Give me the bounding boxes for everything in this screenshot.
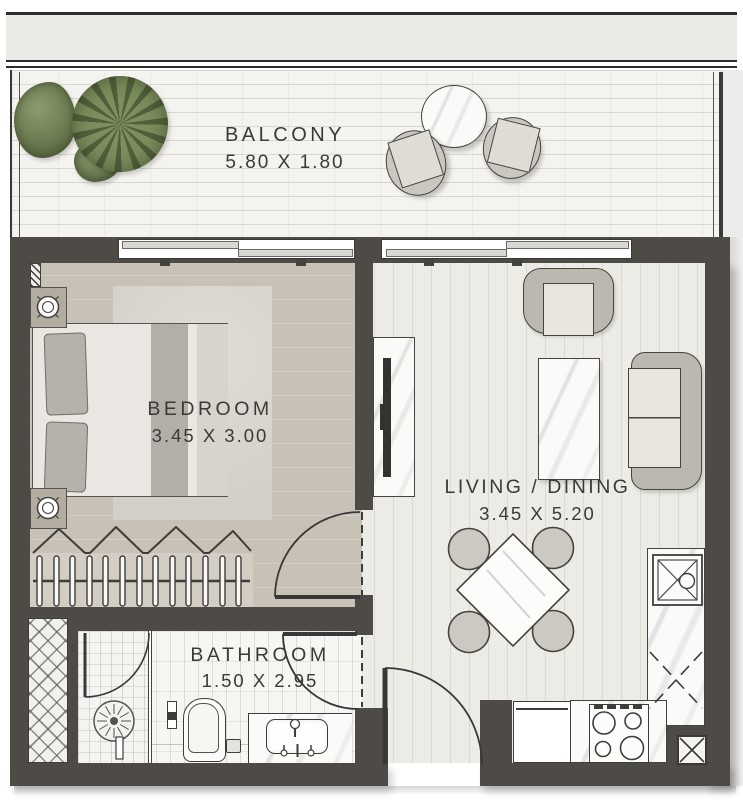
shower-floor xyxy=(78,631,148,763)
balcony-right-rail-line xyxy=(713,72,714,237)
tv-mount xyxy=(380,404,384,430)
palm-plant-icon xyxy=(72,76,168,172)
toilet-paper-holder xyxy=(167,701,177,729)
parapet-line xyxy=(6,66,737,68)
sliding-panel xyxy=(386,249,507,257)
pillow xyxy=(44,421,88,492)
utility-box xyxy=(677,735,707,765)
nightstand xyxy=(30,287,67,328)
balcony-right-wall-line xyxy=(719,72,723,237)
fridge xyxy=(513,701,571,763)
wall-right xyxy=(705,263,730,786)
floor-plan: BALCONY 5.80 X 1.80 BEDROOM 3.45 X 3.00 … xyxy=(0,0,743,806)
room-name: BALCONY xyxy=(170,124,400,147)
fridge-line xyxy=(516,708,568,710)
bedroom-window xyxy=(118,239,355,259)
wall-bathroom-right xyxy=(355,708,388,763)
room-name: BEDROOM xyxy=(110,398,310,420)
wall-bedroom-living xyxy=(355,263,373,510)
room-dimensions: 3.45 X 3.00 xyxy=(110,425,310,446)
duct-shaft xyxy=(28,618,68,763)
outside-right-shade xyxy=(730,237,743,786)
wardrobe-floor xyxy=(30,553,253,607)
room-dimensions: 5.80 X 1.80 xyxy=(170,152,400,174)
outside-bottom-shade xyxy=(14,786,736,795)
room-dimensions: 1.50 X 2.95 xyxy=(160,670,360,691)
nightstand xyxy=(30,488,67,529)
toilet xyxy=(183,698,226,762)
wall-shower-partition xyxy=(68,618,78,763)
sliding-panel xyxy=(506,241,629,249)
room-name: LIVING / DINING xyxy=(420,476,655,498)
tv-icon xyxy=(383,358,391,477)
sliding-panel xyxy=(238,249,353,257)
sofa-seats xyxy=(628,368,681,468)
room-dimensions: 3.45 X 5.20 xyxy=(420,503,655,524)
vanity-sink xyxy=(266,719,328,754)
living-window xyxy=(381,239,632,259)
bathroom-label: BATHROOM 1.50 X 2.95 xyxy=(160,644,360,692)
toilet-bowl xyxy=(188,703,219,753)
wall-bottom-left xyxy=(10,763,388,786)
balcony-label: BALCONY 5.80 X 1.80 xyxy=(170,124,400,174)
wall-left xyxy=(10,263,30,786)
pillow xyxy=(44,332,89,415)
wall-entry-pier xyxy=(480,700,512,763)
wall-hatch-column xyxy=(30,263,41,287)
bush-plant xyxy=(14,82,76,158)
stove xyxy=(589,704,649,763)
bedroom-label: BEDROOM 3.45 X 3.00 xyxy=(110,398,310,447)
living-label: LIVING / DINING 3.45 X 5.20 xyxy=(420,476,655,525)
paper-roll xyxy=(168,712,176,720)
outside-right-strip xyxy=(723,70,743,237)
armchair-seat xyxy=(543,283,594,336)
waste-bin xyxy=(226,739,241,753)
sliding-panel xyxy=(122,241,239,249)
coffee-table xyxy=(538,358,600,480)
room-name: BATHROOM xyxy=(160,644,360,666)
parapet-ledge xyxy=(6,12,737,62)
